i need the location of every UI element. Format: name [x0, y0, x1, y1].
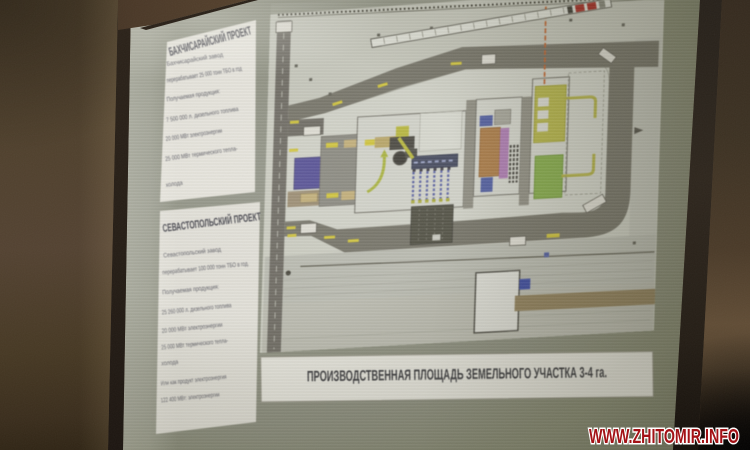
svg-text:WWW.ZHITOMIR.INFO: WWW.ZHITOMIR.INFO: [589, 426, 739, 448]
